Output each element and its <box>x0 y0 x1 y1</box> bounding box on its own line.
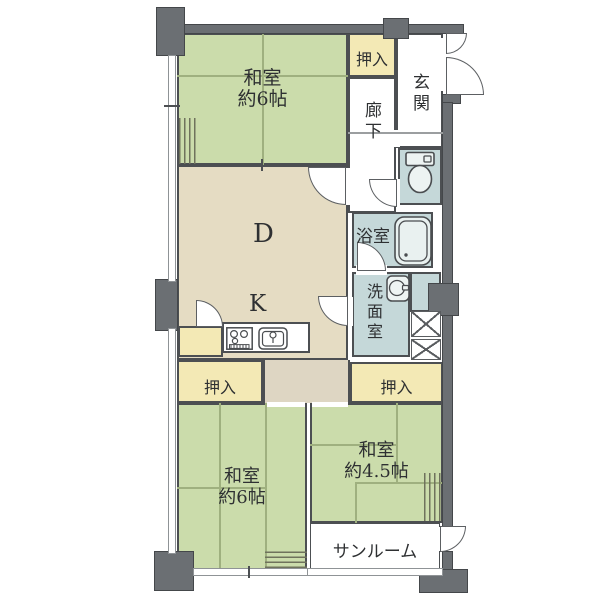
pipe-space-box <box>411 339 441 360</box>
pillar-top-middle <box>384 19 408 38</box>
opening-room-br <box>312 402 348 407</box>
wall-right-lower <box>443 552 452 572</box>
pillar-left <box>156 280 177 330</box>
label-washitsu-top: 和室 約6帖 <box>177 68 348 110</box>
label-corridor: 廊下 <box>359 101 384 143</box>
window-bottom <box>193 568 308 576</box>
window-sunroom-bottom <box>307 568 443 576</box>
label-sunroom: サンルーム <box>310 537 440 562</box>
wall-right <box>443 103 452 527</box>
tatami-line <box>355 482 357 523</box>
window-left-upper <box>168 55 176 282</box>
room-size: 約4.5帖 <box>344 461 409 482</box>
pillar-bottom-left <box>155 552 193 590</box>
pipe-space-box <box>411 311 441 337</box>
window-tick <box>248 566 250 578</box>
label-closet-bottom-left: 押入 <box>177 374 263 398</box>
pillar-top-left <box>157 8 184 55</box>
wall-entrance-stub <box>443 95 460 103</box>
kitchen-sink-icon <box>258 327 288 350</box>
wall-top <box>177 25 463 33</box>
label-washitsu-bottom-right: 和室 約4.5帖 <box>310 440 443 482</box>
window-left-lower <box>168 328 176 554</box>
room-name: 和室 <box>359 440 395 461</box>
label-washitsu-bottom-left: 和室 約6帖 <box>177 466 307 508</box>
hatch-strip <box>265 551 307 568</box>
room-size: 約6帖 <box>218 487 265 508</box>
sink-icon <box>386 275 410 302</box>
stove-icon <box>226 327 253 350</box>
door-entrance-storage <box>446 33 467 54</box>
opening-room-bl <box>267 402 305 407</box>
wall-tick <box>261 159 263 171</box>
hatch-strip <box>179 118 196 164</box>
room-name: 和室 <box>224 466 260 487</box>
label-dining: D <box>253 219 274 249</box>
label-closet-top: 押入 <box>348 46 396 70</box>
passage <box>263 360 350 403</box>
floor-plan: 和室 約6帖 押入 玄関 廊下 浴室 洗面室 D K 押入 押入 和室 約6帖 … <box>0 0 600 600</box>
toilet-icon <box>402 151 438 195</box>
label-kitchen: K <box>249 291 266 317</box>
door-sunroom <box>440 526 466 552</box>
label-washroom: 洗面室 <box>361 283 385 343</box>
door-entrance <box>446 57 484 95</box>
kitchen-side-storage <box>178 326 223 357</box>
label-closet-bottom-right: 押入 <box>350 374 443 398</box>
label-entrance: 玄関 <box>407 73 432 115</box>
label-bathroom: 浴室 <box>356 222 390 247</box>
bathtub-icon <box>394 216 432 266</box>
room-size: 約6帖 <box>237 88 287 110</box>
room-name: 和室 <box>243 67 281 89</box>
